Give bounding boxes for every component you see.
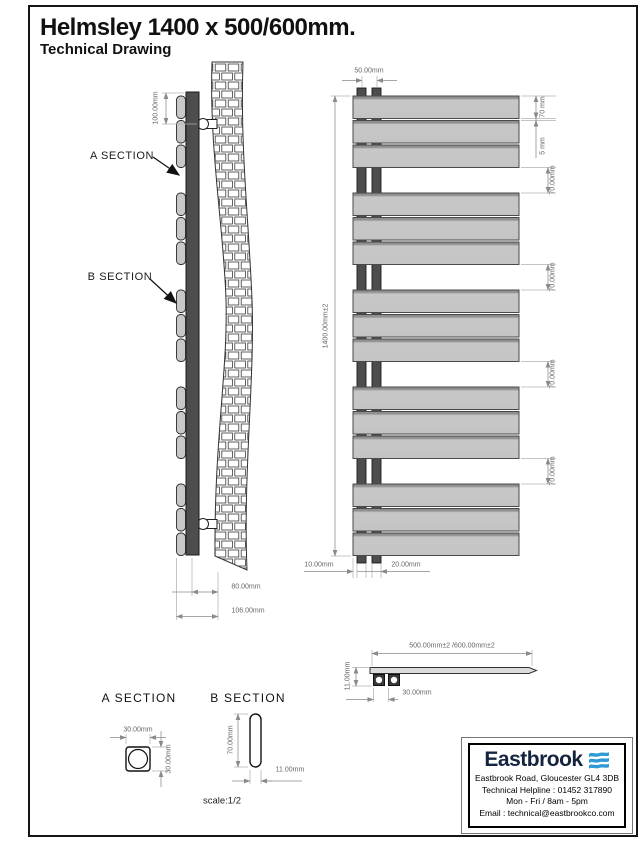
side-view: [150, 62, 252, 620]
section-b-detail: [232, 714, 302, 784]
top-view: [346, 650, 537, 702]
b-section-callout-label: B SECTION: [88, 271, 153, 283]
brand-address: Eastbrook Road, Gloucester GL4 3DB: [470, 773, 624, 785]
technical-drawing-page: Helmsley 1400 x 500/600mm. Technical Dra…: [0, 0, 642, 842]
brand-box: Eastbrook Eastbrook Road, Gloucester GL4…: [468, 743, 626, 828]
section-b-dimensions: [232, 714, 302, 784]
brand-name: Eastbrook: [484, 748, 582, 772]
technical-drawing-canvas: [0, 0, 642, 842]
side-panel-edges: [177, 96, 186, 556]
eastbrook-waves-icon: [588, 751, 610, 769]
dim-label-left-offset: 10.00mm: [304, 562, 333, 569]
dim-label-group-gap-1: 70.00mm: [550, 165, 557, 194]
b-section-leader-arrow: [150, 279, 176, 303]
front-view: [304, 76, 556, 578]
dim-label-tube-gap: 20.00mm: [391, 562, 420, 569]
brand-hours: Mon - Fri / 8am - 5pm: [470, 796, 624, 808]
wall-bracket-top: [198, 119, 218, 130]
section-a-dim-height: 30.00mm: [166, 744, 173, 773]
brand-email: Email : technical@eastbrookco.com: [470, 808, 624, 820]
dim-label-depth-inner: 80.00mm: [231, 584, 260, 591]
a-section-callout-label: A SECTION: [90, 150, 154, 162]
dim-label-overall-width: 500.00mm±2 /600.00mm±2: [409, 643, 495, 650]
top-view-panel: [370, 668, 537, 674]
scale-note: scale:1/2: [203, 796, 241, 807]
dim-label-panel-thickness: 11.00mm: [345, 662, 352, 691]
section-b-dim-width: 11.00mm: [276, 767, 305, 774]
dim-label-top-tube-spacing: 30.00mm: [402, 690, 431, 697]
radiator-panels: [353, 96, 519, 556]
dim-label-group-gap-2: 70.00mm: [550, 262, 557, 291]
section-b-title: B SECTION: [210, 691, 285, 705]
section-a-title: A SECTION: [102, 691, 177, 705]
section-leader-arrows: [150, 157, 179, 303]
a-section-leader-arrow: [153, 157, 179, 175]
dim-label-bracket-offset: 100.00mm: [153, 91, 160, 124]
brand-logo: Eastbrook: [470, 747, 624, 773]
side-tube-bar: [186, 92, 199, 555]
brand-helpline: Technical Helpline : 01452 317890: [470, 785, 624, 797]
dim-label-panel-gap: 5 mm: [540, 137, 547, 155]
section-a-bore: [129, 750, 148, 769]
dim-label-panel-height: 70 mm: [540, 96, 547, 117]
section-a-dim-width: 30.00mm: [123, 727, 152, 734]
section-b-dim-height: 70.00mm: [228, 725, 235, 754]
dim-label-overall-height: 1400.00mm±2: [323, 304, 330, 349]
section-b-panel-profile: [250, 714, 261, 767]
dim-label-tube-spacing: 50.00mm: [354, 68, 383, 75]
dim-label-depth-total: 106.00mm: [231, 608, 264, 615]
wall-bracket-bottom: [198, 519, 218, 530]
dim-label-group-gap-4: 70.00mm: [550, 456, 557, 485]
top-view-tubes: [374, 675, 400, 686]
dim-label-group-gap-3: 70.00mm: [550, 359, 557, 388]
section-a-detail: [110, 731, 167, 787]
wall-hatch: [212, 62, 253, 570]
